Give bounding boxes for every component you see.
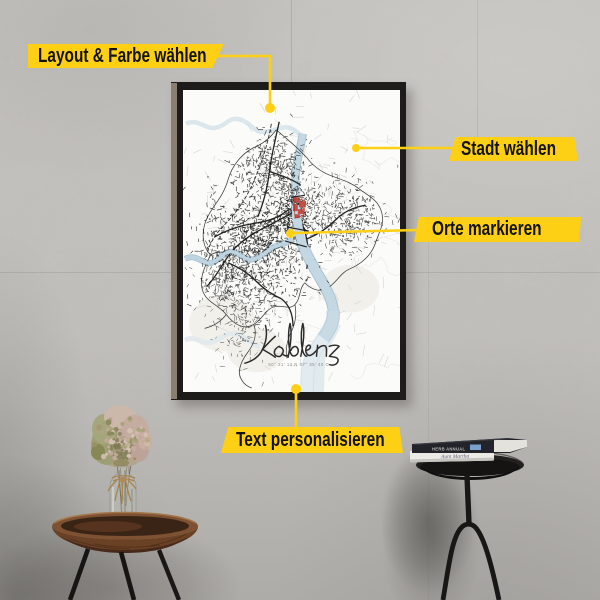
svg-text:HERB ANNUAL: HERB ANNUAL — [432, 447, 465, 452]
svg-text:Aunt Martha: Aunt Martha — [440, 454, 470, 461]
